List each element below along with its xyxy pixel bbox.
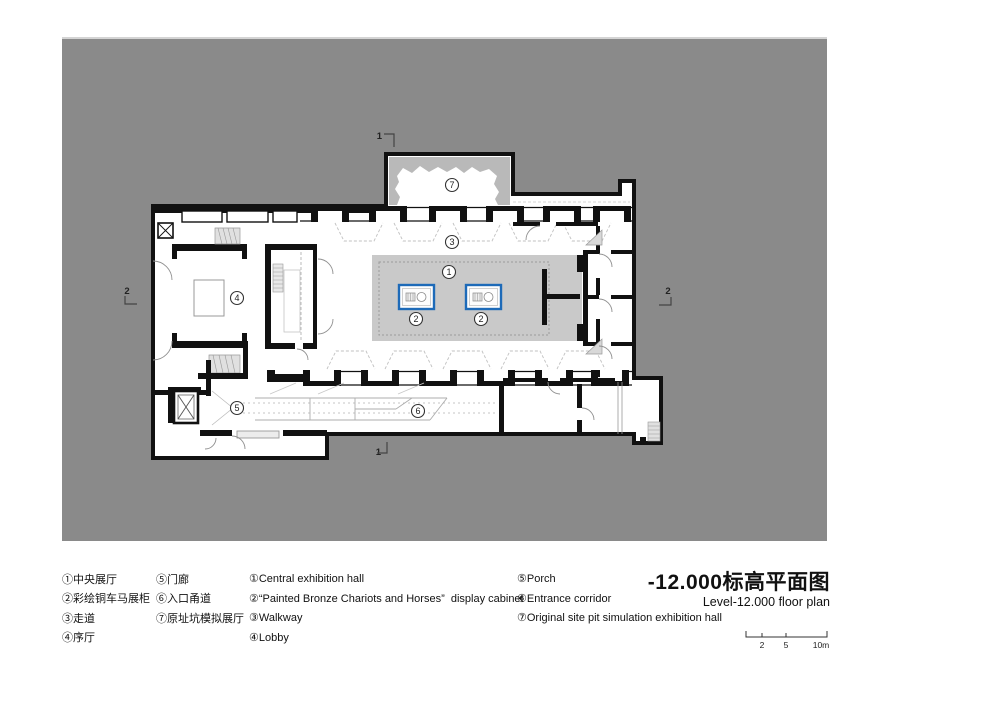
room-label-cabinet-1: 2 [410,313,423,326]
svg-text:1: 1 [377,131,383,142]
drawing-title-zh: -12.000标高平面图 [648,571,830,594]
room-label-corridor: 6 [412,405,425,418]
drawing-title-en: Level-12.000 floor plan [648,595,830,609]
stairs-lower [209,355,240,373]
scale-label-10m: 10m [813,640,830,650]
svg-text:4: 4 [234,293,239,303]
legend-item-en-3: ③Walkway [249,608,524,628]
room-label-lobby: 4 [231,292,244,305]
legend-item-zh-4: ④序厅 [62,628,150,648]
chariot-cabinet-1 [399,285,434,309]
legend-item-en-1: ①Central exhibition hall [249,569,524,589]
floor-plan: 1 2 2 3 4 5 6 7 1 1 2 2 [62,39,827,543]
legend-item-zh-2: ②彩绘铜车马展柜 [62,589,150,609]
svg-text:5: 5 [234,403,239,413]
chariot-cabinet-2 [466,285,501,309]
svg-text:7: 7 [449,180,454,190]
stairs-upper [215,228,240,244]
legend-item-en-7: ⑦Original site pit simulation exhibition… [517,608,722,628]
svg-text:2: 2 [413,314,418,324]
legend-zh-col2: ⑤门廊 ⑥入口甬道 ⑦原址坑模拟展厅 [156,569,244,628]
svg-text:3: 3 [449,237,454,247]
room-label-walkway: 3 [446,236,459,249]
legend-item-zh-3: ③走道 [62,608,150,628]
legend-item-en-2: ②“Painted Bronze Chariots and Horses” di… [249,589,524,609]
room-label-pit: 7 [446,179,459,192]
legend-item-en-4: ④Lobby [249,628,524,648]
legend-item-zh-7: ⑦原址坑模拟展厅 [156,608,244,628]
legend-item-zh-5: ⑤门廊 [156,569,244,589]
legend-item-zh-6: ⑥入口甬道 [156,589,244,609]
elevator-icon [174,391,198,423]
bench [237,431,279,438]
svg-text:2: 2 [124,286,129,297]
section-marker-right: 2 [659,286,671,305]
scale-bar: 2 5 10m [741,628,836,652]
drawing-canvas: 1 2 2 3 4 5 6 7 1 1 2 2 [62,37,827,541]
svg-text:2: 2 [478,314,483,324]
section-marker-bottom: 1 [376,442,387,458]
svg-text:2: 2 [665,286,670,297]
scale-label-2: 2 [760,640,765,650]
svg-text:6: 6 [415,406,420,416]
section-marker-left: 2 [124,286,137,304]
title-block: -12.000标高平面图 Level-12.000 floor plan [648,571,830,609]
legend-en-col1: ①Central exhibition hall ②“Painted Bronz… [249,569,524,647]
display-pedestal [194,280,224,316]
legend-item-zh-1: ①中央展厅 [62,569,150,589]
shaft-icon [158,223,173,238]
room-label-porch: 5 [231,402,244,415]
svg-text:1: 1 [446,267,451,277]
room-label-hall: 1 [443,266,456,279]
legend: ①中央展厅 ②彩绘铜车马展柜 ③走道 ④序厅 ⑤门廊 ⑥入口甬道 ⑦原址坑模拟展… [0,569,1000,659]
scale-label-5: 5 [784,640,789,650]
legend-zh-col1: ①中央展厅 ②彩绘铜车马展柜 ③走道 ④序厅 [62,569,150,647]
room-label-cabinet-2: 2 [475,313,488,326]
section-marker-top: 1 [377,131,394,147]
